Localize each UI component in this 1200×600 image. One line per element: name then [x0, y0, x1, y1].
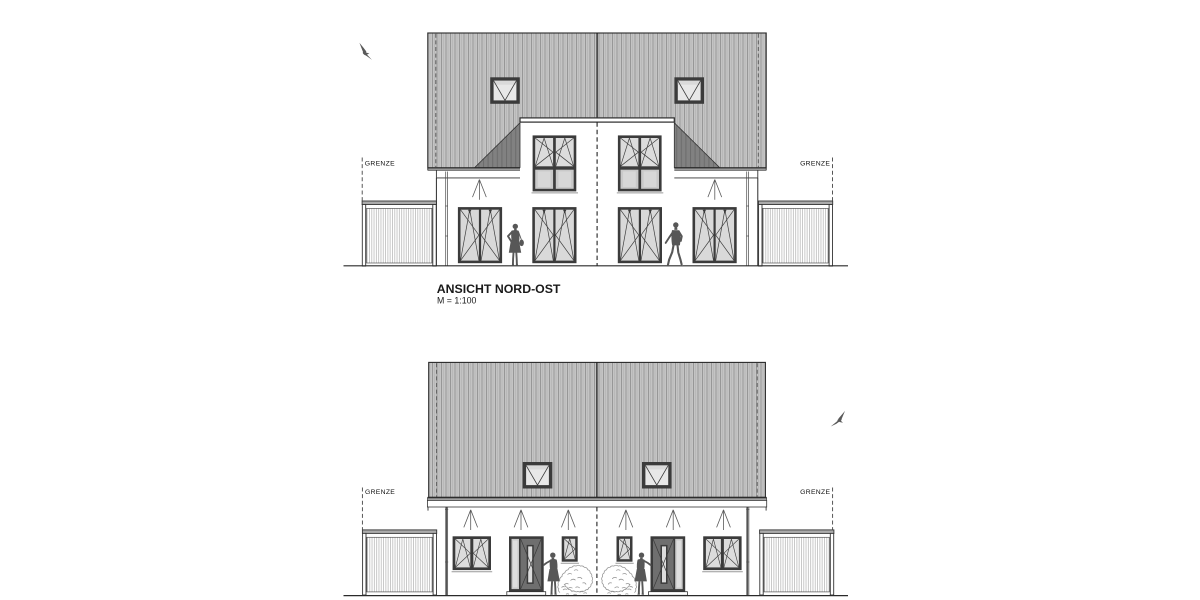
- svg-text:GRENZE: GRENZE: [365, 161, 395, 168]
- svg-text:GRENZE: GRENZE: [365, 489, 395, 496]
- svg-text:ANSICHT NORD-OST: ANSICHT NORD-OST: [437, 282, 561, 296]
- svg-text:GRENZE: GRENZE: [800, 161, 830, 168]
- svg-text:M = 1:100: M = 1:100: [437, 295, 476, 305]
- svg-text:GRENZE: GRENZE: [800, 489, 830, 496]
